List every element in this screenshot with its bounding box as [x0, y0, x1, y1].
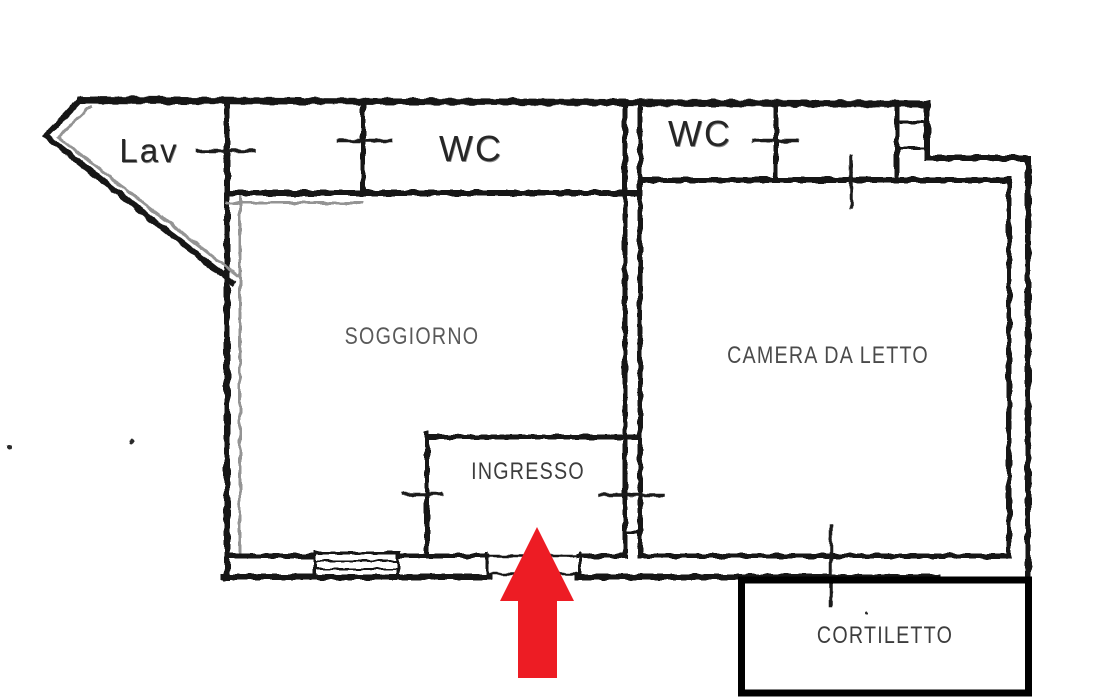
- room-label-ingresso: INGRESSO: [471, 458, 585, 486]
- entrance-arrow-icon: [500, 527, 574, 678]
- door-ticks: [198, 141, 851, 606]
- room-label-soggiorno: SOGGIORNO: [345, 323, 480, 351]
- room-label-lav: Lav: [119, 132, 178, 170]
- room-label-wc-right: WC: [668, 113, 732, 155]
- room-label-camera-da-letto: CAMERA DA LETTO: [727, 342, 929, 370]
- outer-walls: [46, 100, 1028, 578]
- top-wall: [80, 100, 927, 104]
- window-symbol: [315, 553, 398, 576]
- room-label-wc-left: WC: [439, 128, 503, 170]
- room-label-cortiletto: CORTILETTO: [817, 622, 953, 650]
- lav-diagonal-wall: [46, 100, 232, 282]
- right-step-wall: [927, 104, 1028, 576]
- floor-plan: Lav WC WC SOGGIORNO CAMERA DA LETTO INGR…: [0, 0, 1098, 700]
- floor-plan-drawing: [0, 0, 1098, 700]
